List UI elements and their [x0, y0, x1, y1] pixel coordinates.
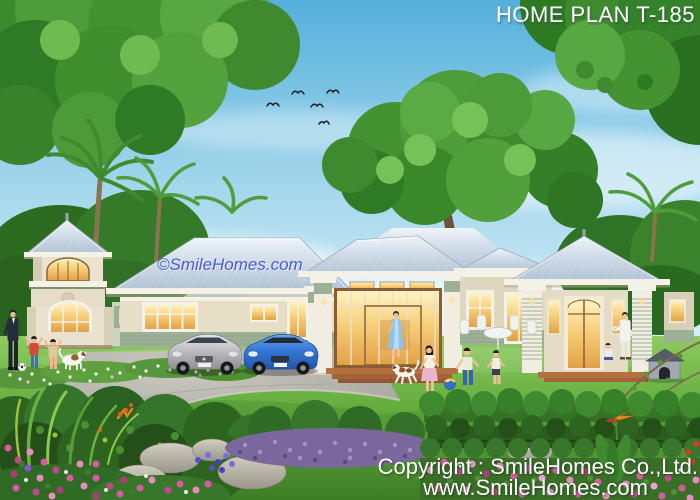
hedge-rows-right: [419, 388, 700, 458]
soccer-ball: [18, 363, 26, 371]
scene-svg: [0, 0, 700, 500]
home-plan-rendering: HOME PLAN T-185 ©SmileHomes.com Copyrigh…: [0, 0, 700, 500]
play-ball: [445, 379, 456, 390]
